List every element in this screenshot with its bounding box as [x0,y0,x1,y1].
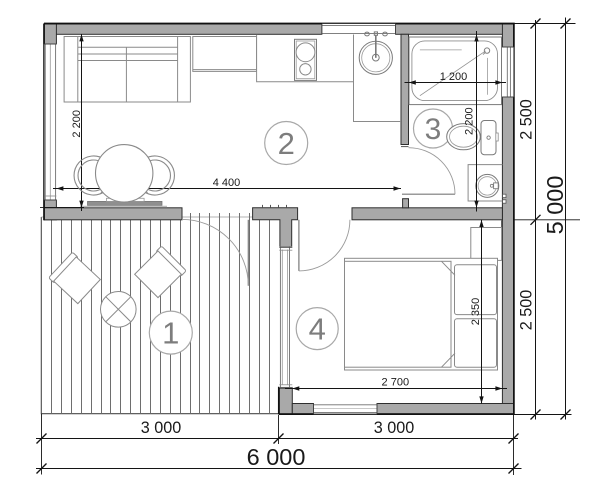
svg-text:1: 1 [162,315,179,350]
svg-text:2 500: 2 500 [518,99,536,140]
svg-text:1 200: 1 200 [440,71,468,83]
svg-text:2 200: 2 200 [464,107,476,135]
svg-text:6 000: 6 000 [247,444,306,470]
svg-text:4 400: 4 400 [213,177,241,189]
svg-text:2 200: 2 200 [71,110,83,138]
svg-text:3: 3 [425,113,442,146]
svg-text:4: 4 [309,311,326,346]
svg-text:5 000: 5 000 [542,176,568,235]
svg-text:2 500: 2 500 [518,290,536,331]
svg-text:2: 2 [278,126,295,161]
svg-text:3 000: 3 000 [141,419,182,437]
svg-text:3 000: 3 000 [374,419,415,437]
svg-text:2 700: 2 700 [382,377,410,389]
svg-text:2 350: 2 350 [470,298,482,326]
